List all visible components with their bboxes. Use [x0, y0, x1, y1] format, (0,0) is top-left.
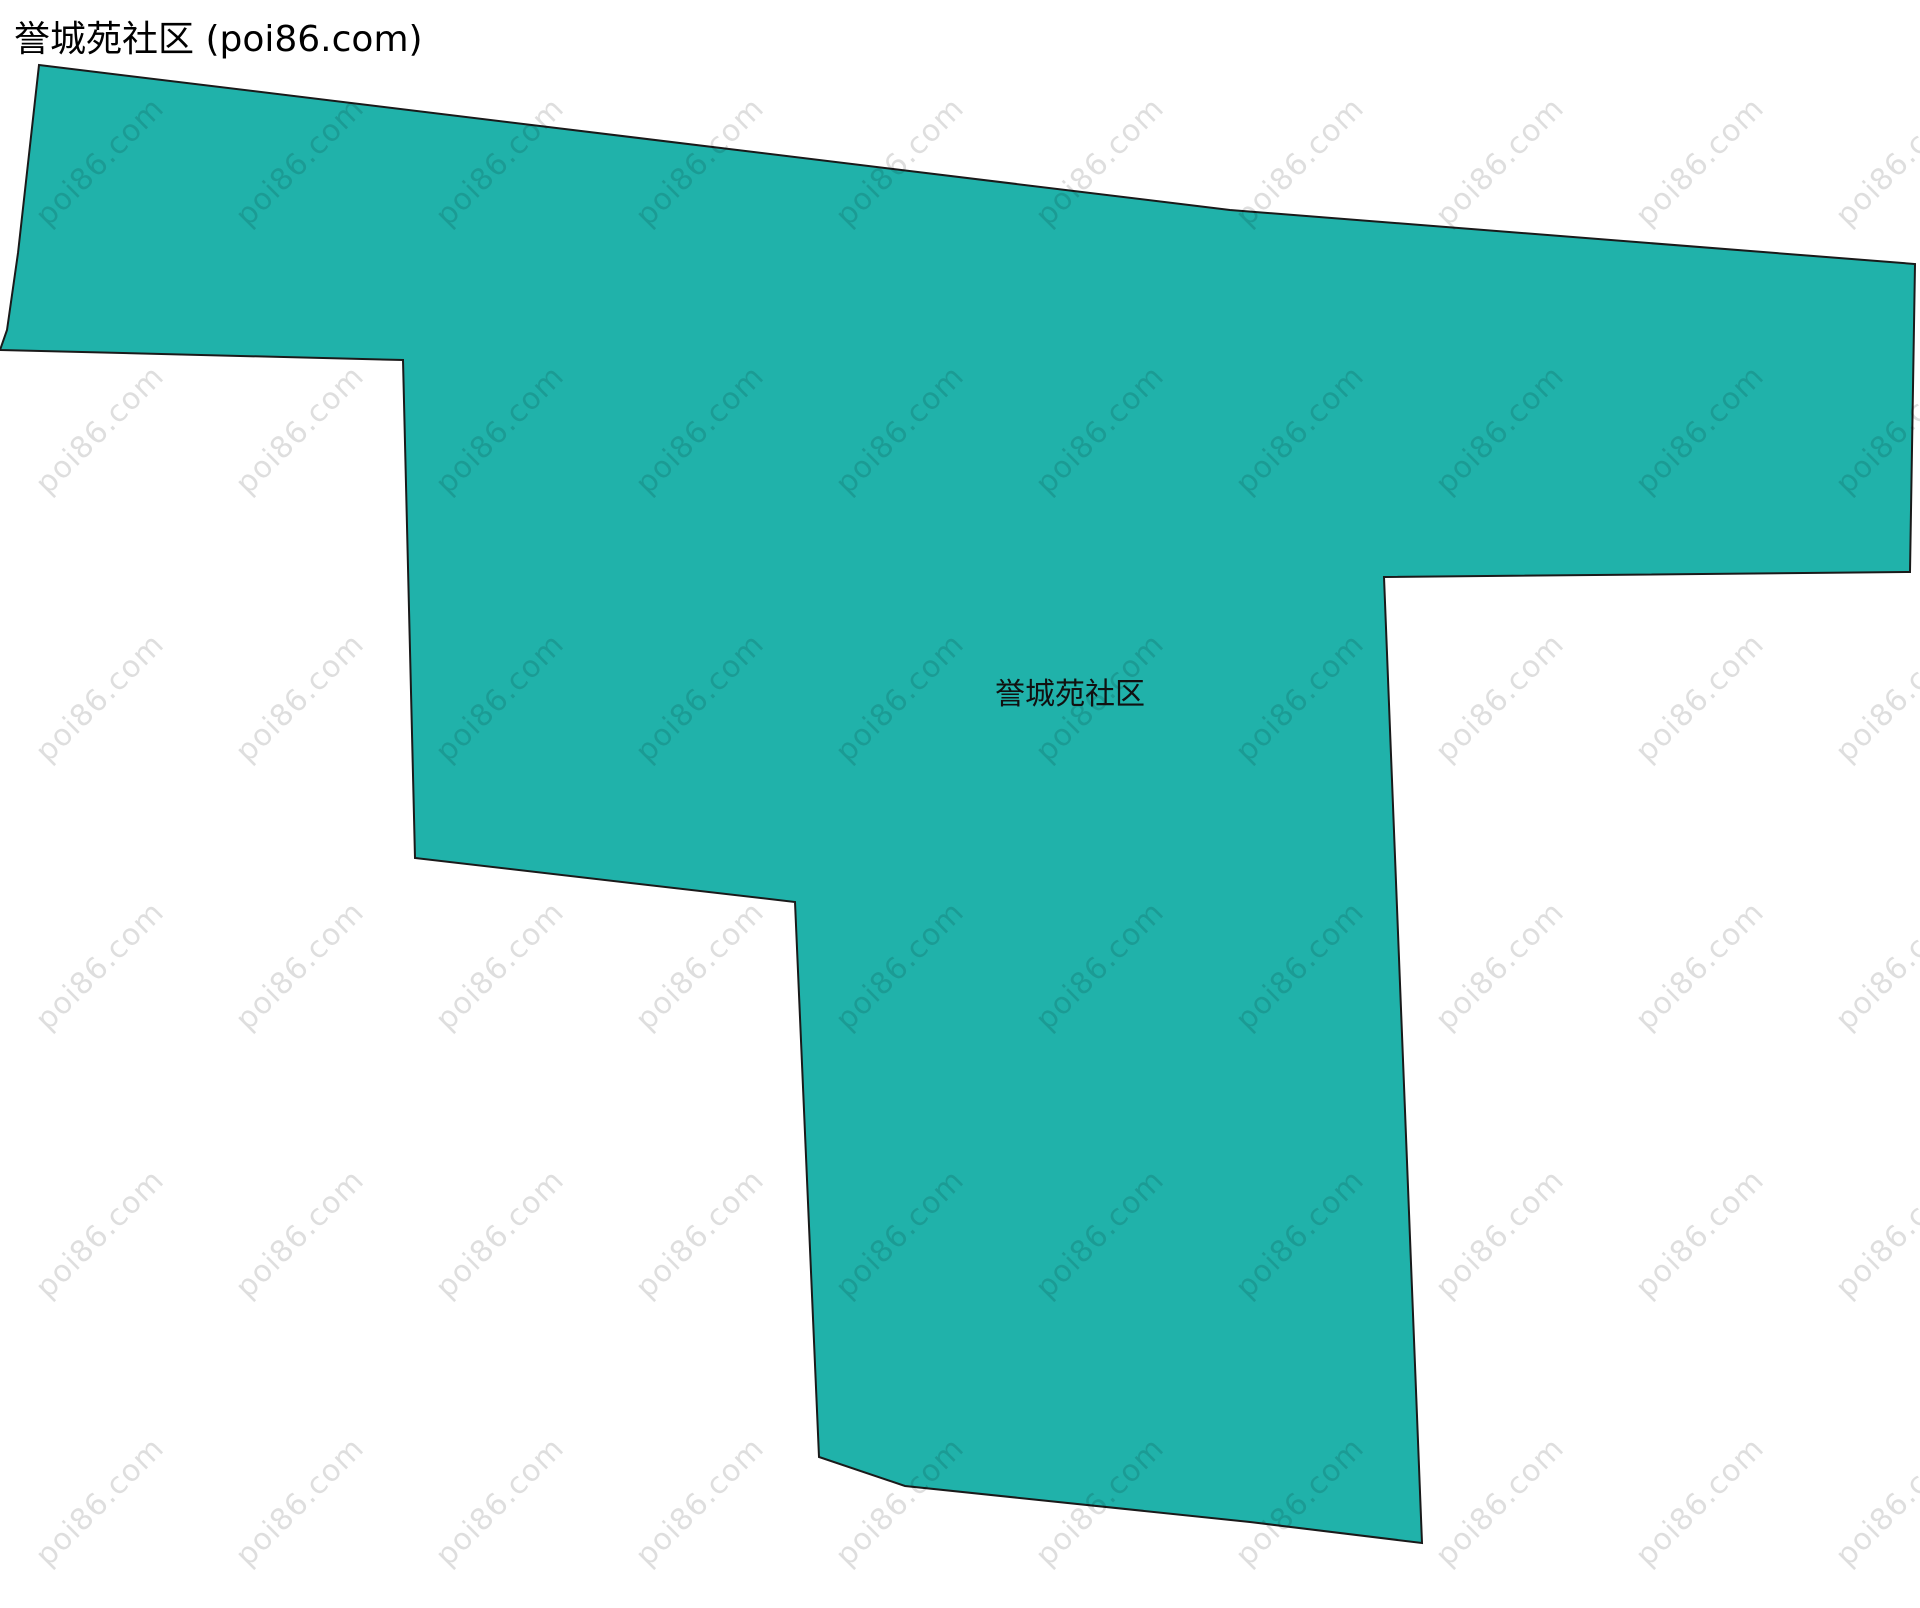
- region-boundary-svg: [0, 0, 1920, 1608]
- map-canvas: poi86.compoi86.compoi86.compoi86.compoi8…: [0, 0, 1920, 1608]
- region-label: 誉城苑社区: [995, 669, 1145, 713]
- region-polygon: [0, 65, 1915, 1543]
- page-title: 誉城苑社区 (poi86.com): [14, 10, 423, 62]
